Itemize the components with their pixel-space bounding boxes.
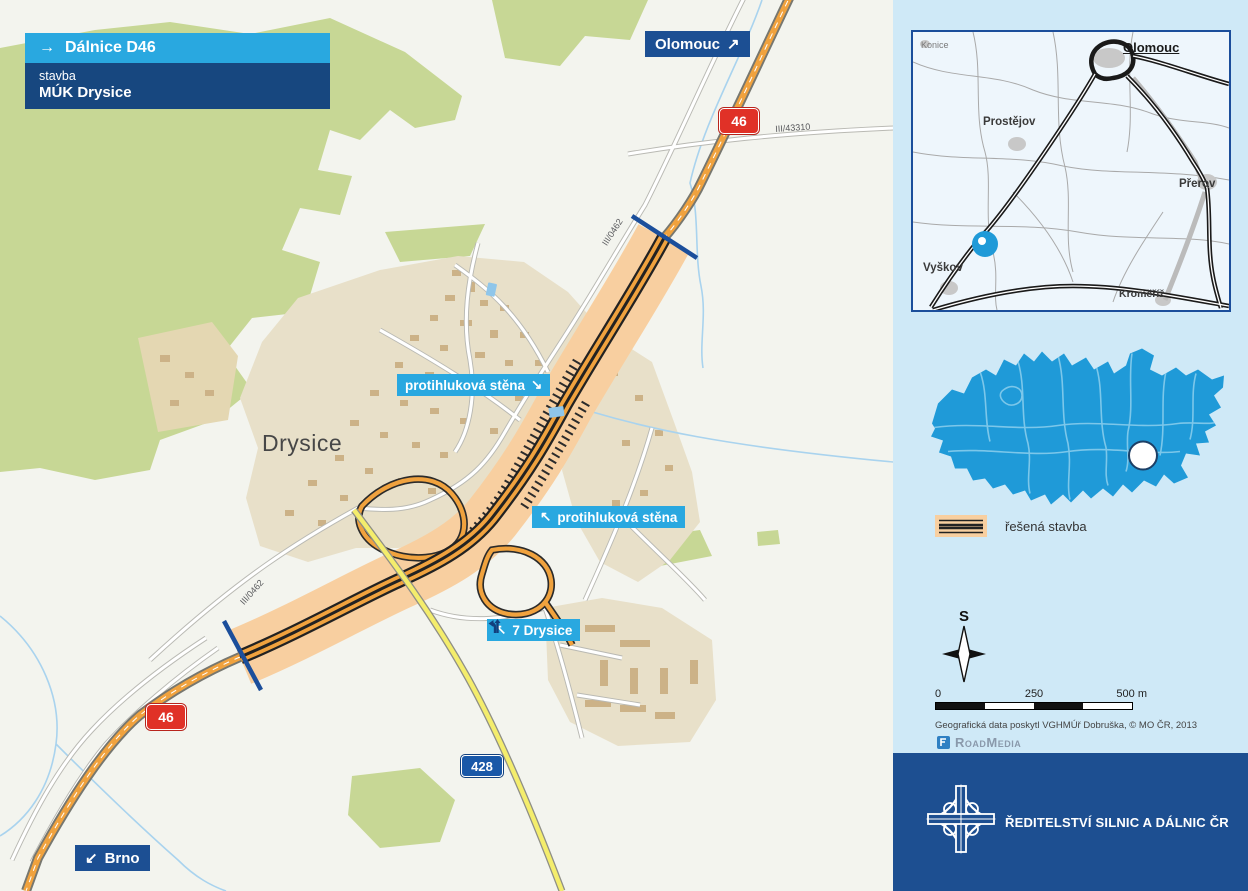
noise-wall-2-label: protihluková stěna [557, 510, 677, 525]
legend-corridor-swatch [935, 515, 987, 537]
main-map-canvas [0, 0, 893, 891]
inset-city-prerov: Přerov [1179, 178, 1215, 190]
scale-tick-0: 0 [935, 688, 941, 700]
arrow-nw-icon: ↖ [540, 509, 551, 525]
legend-label: řešená stavba [1005, 519, 1087, 534]
data-credits: Geografická data poskytl VGHMÚř Dobruška… [935, 720, 1197, 731]
route-title: Dálnice D46 [65, 39, 156, 57]
exit-label: 7 Drysice [512, 623, 572, 638]
map-sheet: → Dálnice D46 stavba MÚK Drysice Olomouc… [0, 0, 1248, 891]
brno-label: Brno [105, 850, 140, 867]
inset-city-konice: Konice [921, 40, 949, 50]
interchange-fork-icon [487, 619, 503, 634]
noise-wall-1-label: protihluková stěna [405, 378, 525, 393]
rsd-logo-icon [925, 783, 997, 855]
main-map: → Dálnice D46 stavba MÚK Drysice Olomouc… [0, 0, 893, 891]
road-shield-46-south: 46 [146, 704, 186, 730]
scale-tick-500: 500 m [1116, 688, 1147, 700]
inset-location-marker-center [978, 237, 986, 245]
inset-motorways [931, 42, 1229, 310]
callout-noise-wall-south: ↖ protihluková stěna [532, 506, 685, 528]
inset-location-marker [972, 231, 998, 257]
direction-label-brno: ↙ Brno [75, 845, 150, 871]
arrow-sw-icon: ↙ [85, 849, 98, 867]
czech-map-location-marker [1129, 442, 1157, 470]
scale-bar-segments [935, 702, 1133, 710]
country-locator-map [918, 330, 1230, 525]
olomouc-label: Olomouc [655, 36, 720, 53]
legend: řešená stavba [935, 515, 1087, 537]
organization-name: ŘEDITELSTVÍ SILNIC A DÁLNIC ČR [1005, 815, 1229, 830]
scale-bar: 0 250 500 m [935, 688, 1133, 710]
title-block: → Dálnice D46 stavba MÚK Drysice [25, 33, 330, 109]
czech-map-canvas [918, 330, 1230, 525]
roadmedia-icon [937, 736, 950, 749]
inset-city-vyskov: Vyškov [923, 262, 963, 274]
region-inset-map: Konice Olomouc Prostějov Přerov Vyškov K… [911, 30, 1231, 312]
sidebar: Konice Olomouc Prostějov Přerov Vyškov K… [893, 0, 1248, 891]
footer: ŘEDITELSTVÍ SILNIC A DÁLNIC ČR [893, 753, 1248, 891]
callout-exit-7-drysice: ↖ 7 Drysice [487, 619, 580, 641]
scale-tick-250: 250 [1025, 688, 1043, 700]
road-shield-46-north: 46 [719, 108, 759, 134]
roadmedia-label: RoadMedia [955, 735, 1021, 750]
place-label-drysice: Drysice [262, 430, 342, 457]
inset-city-olomouc: Olomouc [1123, 40, 1179, 55]
direction-label-olomouc: Olomouc ↗ [645, 31, 750, 57]
compass: S [941, 608, 987, 688]
inset-city-kromeriz: Kroměříž [1119, 288, 1165, 300]
dashed-arrow-icon: → [39, 39, 55, 57]
inset-city-areas [920, 40, 1217, 306]
callout-noise-wall-north: protihluková stěna ↘ [397, 374, 550, 396]
route-title-bar: → Dálnice D46 [25, 33, 330, 63]
project-title-box: stavba MÚK Drysice [25, 63, 330, 109]
compass-north-label: S [941, 608, 987, 625]
project-name: MÚK Drysice [39, 84, 316, 102]
inset-city-prostejov: Prostějov [983, 116, 1035, 128]
arrow-se-icon: ↘ [531, 377, 542, 393]
compass-rose-icon [941, 625, 987, 683]
arrow-ne-icon: ↗ [727, 35, 740, 53]
road-shield-428: 428 [461, 755, 503, 777]
construction-word: stavba [39, 68, 316, 84]
roadmedia-brand: RoadMedia [937, 735, 1021, 750]
